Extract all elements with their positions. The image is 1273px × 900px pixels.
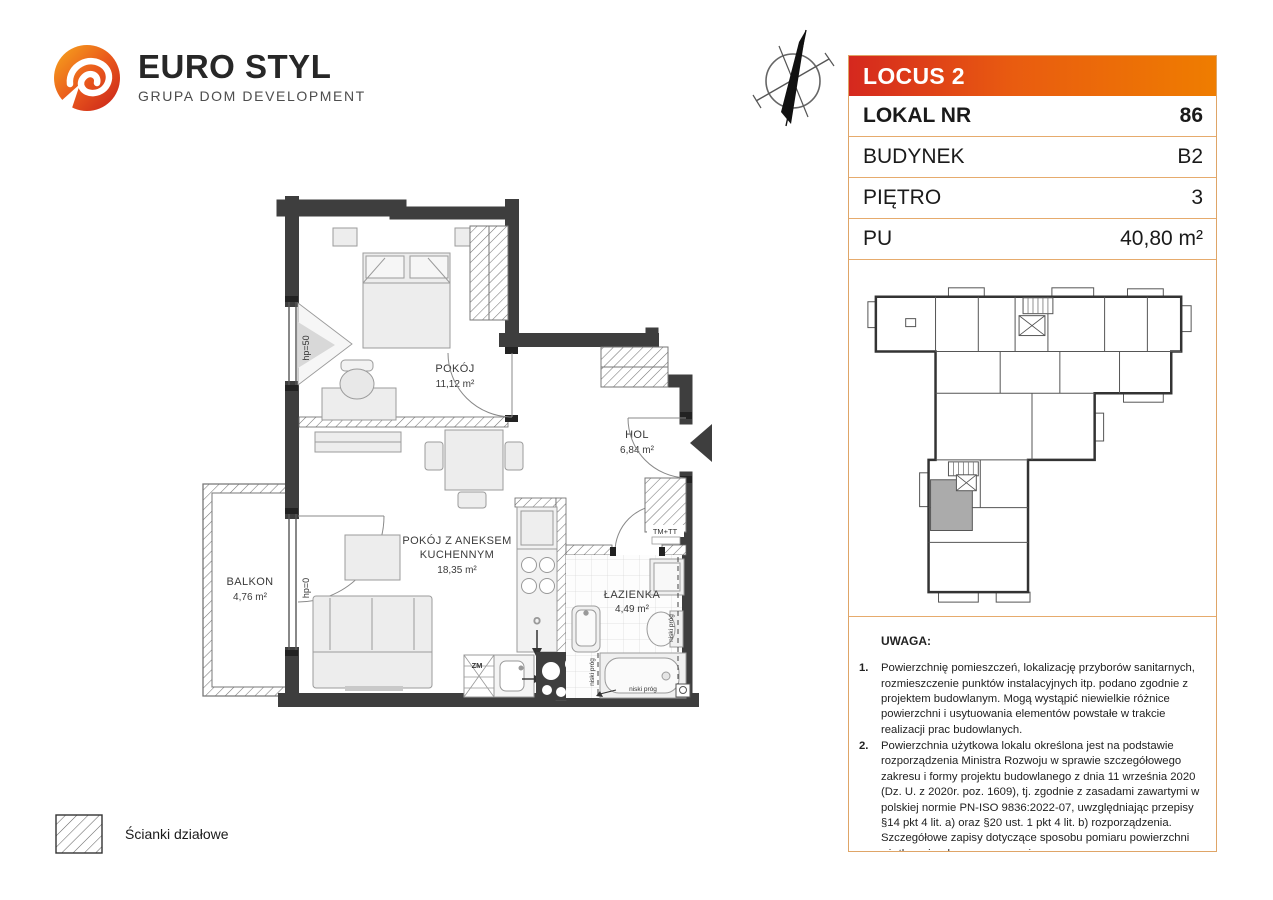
eurostyl-logo-icon [50, 40, 124, 114]
note-text: Powierzchnię pomieszczeń, lokalizację pr… [881, 661, 1200, 738]
room-label-hol: HOL [625, 429, 649, 441]
brand-subtitle: GRUPA DOM DEVELOPMENT [138, 88, 366, 104]
kitchen-units: O [517, 507, 557, 658]
zm-label: ZM [472, 661, 483, 670]
room-area-balkon: 4,76 m² [233, 592, 268, 603]
info-row-lokal-nr: LOKAL NR 86 [849, 96, 1216, 137]
budynek-value: B2 [1177, 145, 1203, 169]
info-row-budynek: BUDYNEK B2 [849, 137, 1216, 178]
entrance-marker-icon [690, 424, 712, 462]
apartment-floor-plan: BALKON 4,76 m² [180, 190, 740, 720]
partition-wall-hatch-icon [55, 814, 103, 854]
note-text: Powierzchnia użytkowa lokalu określona j… [881, 739, 1200, 851]
room-label-pokoj-aneks-2: KUCHENNYM [420, 549, 495, 561]
brand-logo: EURO STYL GRUPA DOM DEVELOPMENT [50, 40, 366, 114]
building-key-plan [849, 261, 1216, 615]
floor-plan-sheet: EURO STYL GRUPA DOM DEVELOPMENT [0, 0, 1273, 900]
lokal-nr-value: 86 [1180, 104, 1203, 128]
room-label-lazienka: ŁAZIENKA [604, 589, 661, 601]
pu-label: PU [863, 227, 892, 251]
pu-value: 40,80 m² [1120, 227, 1203, 251]
building-key-plan-section [849, 260, 1216, 617]
note-item-2: 2. Powierzchnia użytkowa lokalu określon… [859, 739, 1200, 851]
north-arrow-compass-icon [740, 25, 850, 137]
bedroom-wardrobe [470, 226, 508, 320]
niski-prog-left: niski próg [589, 658, 596, 686]
niski-prog-tub: niski próg [629, 686, 657, 693]
investment-name: LOCUS 2 [863, 63, 965, 90]
pietro-label: PIĘTRO [863, 186, 941, 210]
notes-section: UWAGA: 1. Powierzchnię pomieszczeń, loka… [849, 617, 1216, 851]
investment-name-header: LOCUS 2 [849, 56, 1216, 96]
room-area-pokoj-aneks: 18,35 m² [437, 565, 477, 576]
note-item-1: 1. Powierzchnię pomieszczeń, lokalizację… [859, 661, 1200, 738]
brand-name: EURO STYL [138, 50, 366, 83]
room-label-pokoj-aneks-1: POKÓJ Z ANEKSEM [402, 534, 511, 547]
balcony: BALKON 4,76 m² [203, 484, 292, 696]
hol-closet [601, 347, 668, 387]
room-area-lazienka: 4,49 m² [615, 604, 650, 615]
building-outline [876, 297, 1181, 592]
balcony-door-height-label: hp=0 [301, 578, 311, 598]
window-height-label: hp=50 [301, 335, 311, 360]
room-label-balkon: BALKON [226, 576, 273, 588]
room-label-pokoj: POKÓJ [435, 362, 474, 375]
vent-label: O [533, 616, 540, 626]
unit-info-panel: LOCUS 2 LOKAL NR 86 BUDYNEK B2 PIĘTRO 3 … [848, 55, 1217, 852]
budynek-label: BUDYNEK [863, 145, 965, 169]
notes-title: UWAGA: [881, 633, 1200, 649]
legend-label: Ścianki działowe [125, 826, 229, 842]
niski-prog-right: niski próg [668, 614, 675, 642]
bedroom-furniture [322, 228, 479, 420]
room-area-pokoj: 11,12 m² [436, 379, 475, 390]
note-number: 1. [859, 661, 881, 738]
pietro-value: 3 [1191, 186, 1203, 210]
info-row-pu: PU 40,80 m² [849, 219, 1216, 260]
lokal-nr-label: LOKAL NR [863, 104, 971, 128]
tm-tt-closet: TM+TT [645, 478, 686, 544]
note-number: 2. [859, 739, 881, 851]
tm-tt-label: TM+TT [653, 527, 678, 536]
legend: Ścianki działowe [55, 814, 229, 854]
info-row-pietro: PIĘTRO 3 [849, 178, 1216, 219]
